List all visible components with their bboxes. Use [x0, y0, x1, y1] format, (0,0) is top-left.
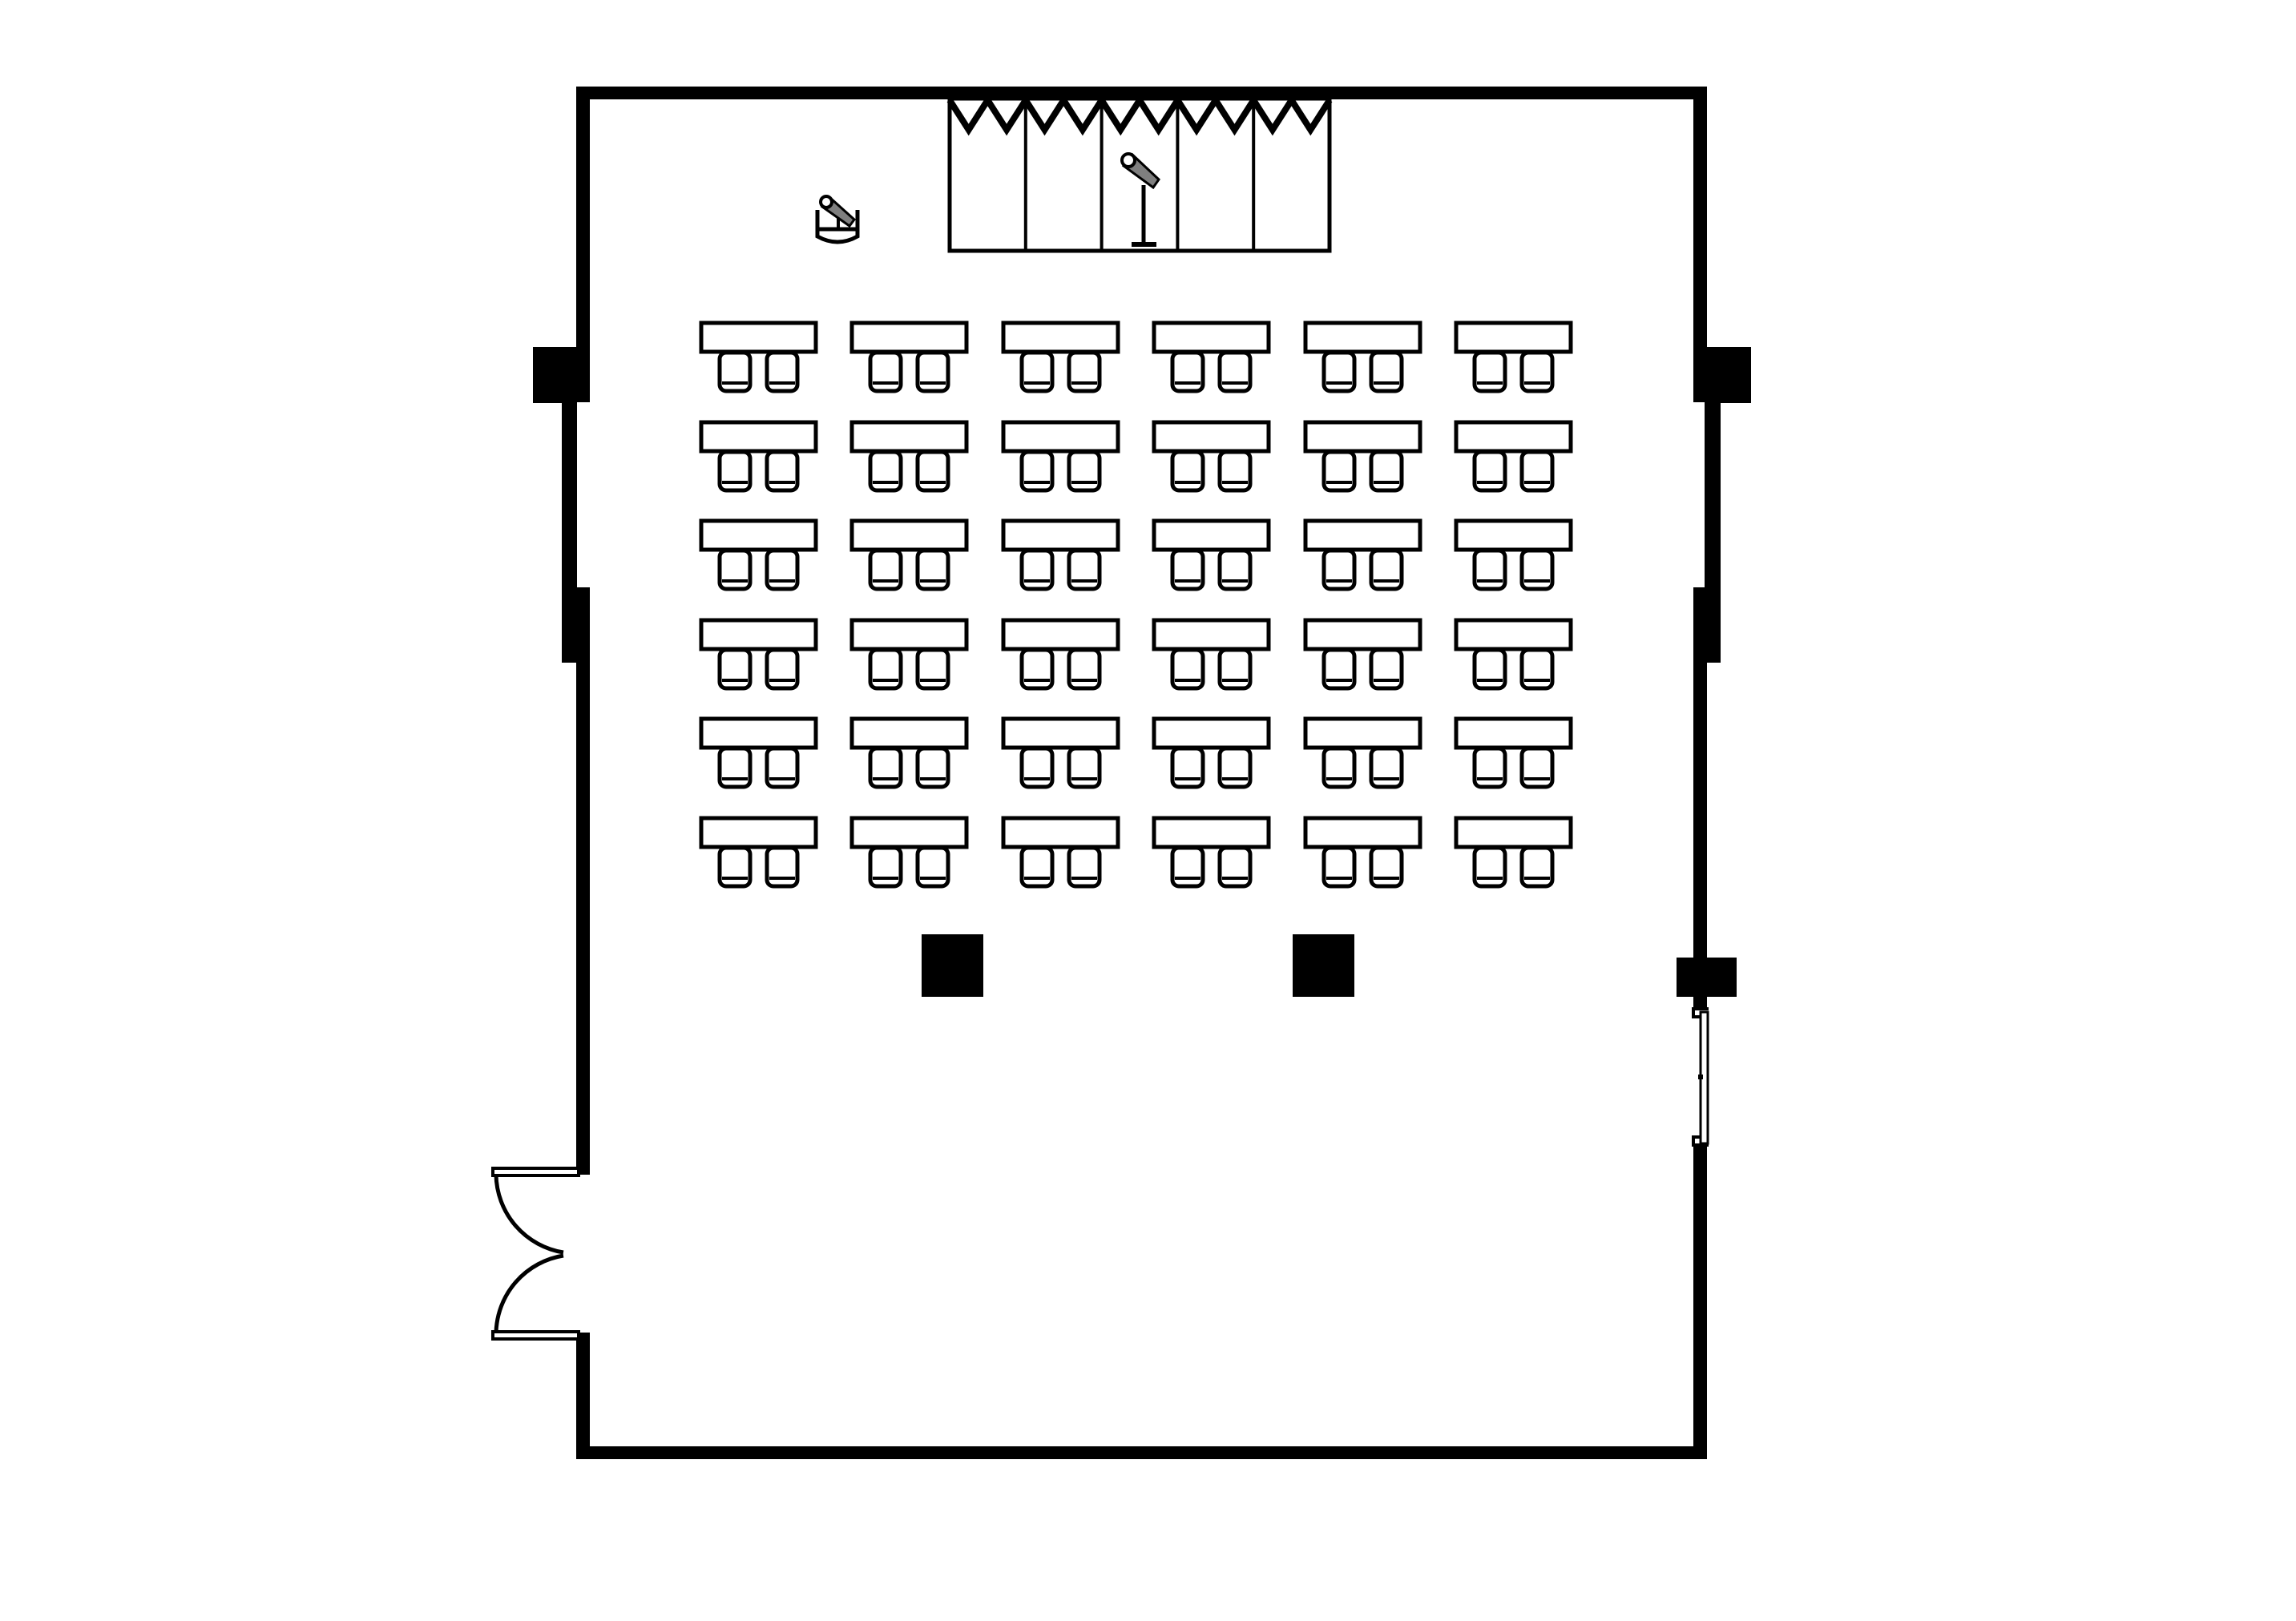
lectern-mic-head — [821, 196, 832, 208]
chair[interactable] — [1022, 550, 1052, 589]
sliding-door-mid-tick — [1698, 1075, 1703, 1079]
chair[interactable] — [767, 452, 797, 490]
table-with-chairs[interactable] — [1456, 521, 1571, 589]
floor-plan-page — [0, 0, 2296, 1621]
wall-unit-block[interactable] — [1677, 958, 1737, 997]
table[interactable] — [1154, 323, 1269, 352]
chair[interactable] — [1172, 550, 1203, 589]
chair[interactable] — [1069, 650, 1100, 688]
table-with-chairs[interactable] — [1154, 719, 1269, 787]
seating-area — [701, 323, 1571, 886]
table-with-chairs[interactable] — [1456, 719, 1571, 787]
table-with-chairs[interactable] — [1456, 323, 1571, 391]
table-with-chairs[interactable] — [1003, 422, 1118, 490]
chair[interactable] — [1022, 748, 1052, 787]
table[interactable] — [1154, 521, 1269, 550]
chair[interactable] — [1172, 650, 1203, 688]
table-with-chairs[interactable] — [852, 719, 966, 787]
table-with-chairs[interactable] — [701, 323, 816, 391]
chair[interactable] — [1022, 848, 1052, 886]
table[interactable] — [1456, 521, 1571, 550]
chair[interactable] — [1522, 353, 1552, 391]
chair[interactable] — [1475, 452, 1505, 490]
wall-pier — [1693, 587, 1707, 663]
sliding-door[interactable] — [1693, 1009, 1709, 1145]
chair[interactable] — [1220, 748, 1250, 787]
chair[interactable] — [918, 550, 948, 589]
wall-pier — [576, 587, 590, 663]
room-walls — [533, 87, 1751, 1459]
floor-plan-canvas — [0, 0, 2296, 1621]
door-swing-arc — [496, 1175, 563, 1252]
table-with-chairs[interactable] — [1003, 818, 1118, 886]
chair[interactable] — [1069, 848, 1100, 886]
table[interactable] — [1003, 521, 1118, 550]
table-with-chairs[interactable] — [1305, 521, 1420, 589]
table[interactable] — [1456, 719, 1571, 748]
table[interactable] — [852, 521, 966, 550]
door-jamb — [579, 1167, 590, 1175]
table[interactable] — [1456, 818, 1571, 847]
table[interactable] — [701, 422, 816, 451]
table[interactable] — [1305, 422, 1420, 451]
table[interactable] — [1003, 323, 1118, 352]
chair[interactable] — [1220, 650, 1250, 688]
chair[interactable] — [1522, 650, 1552, 688]
table-with-chairs[interactable] — [701, 818, 816, 886]
table[interactable] — [701, 818, 816, 847]
table-with-chairs[interactable] — [1305, 818, 1420, 886]
table[interactable] — [852, 818, 966, 847]
table[interactable] — [1154, 719, 1269, 748]
door-leaf[interactable] — [493, 1168, 579, 1175]
floor-block[interactable] — [922, 934, 983, 997]
table-with-chairs[interactable] — [701, 422, 816, 490]
table-with-chairs[interactable] — [1305, 620, 1420, 688]
chair[interactable] — [1022, 452, 1052, 490]
chair[interactable] — [1172, 452, 1203, 490]
door-leaf[interactable] — [493, 1332, 579, 1339]
table-with-chairs[interactable] — [1456, 620, 1571, 688]
chair[interactable] — [1475, 550, 1505, 589]
chair[interactable] — [767, 550, 797, 589]
chair[interactable] — [870, 848, 901, 886]
chair[interactable] — [767, 748, 797, 787]
chair[interactable] — [918, 353, 948, 391]
chair[interactable] — [1371, 452, 1402, 490]
table[interactable] — [1305, 323, 1420, 352]
double-door[interactable] — [493, 1167, 590, 1340]
wall-segment — [576, 663, 590, 1167]
chair[interactable] — [1371, 650, 1402, 688]
chair[interactable] — [1475, 748, 1505, 787]
chair[interactable] — [1022, 650, 1052, 688]
wall-segment — [576, 87, 590, 402]
table-with-chairs[interactable] — [852, 323, 966, 391]
table-with-chairs[interactable] — [1003, 620, 1118, 688]
table-with-chairs[interactable] — [1154, 323, 1269, 391]
chair[interactable] — [1371, 353, 1402, 391]
table[interactable] — [1305, 620, 1420, 649]
table-with-chairs[interactable] — [1003, 323, 1118, 391]
table[interactable] — [1456, 620, 1571, 649]
chair[interactable] — [1324, 550, 1354, 589]
wall-segment — [576, 1446, 1707, 1459]
chair[interactable] — [1324, 650, 1354, 688]
chair[interactable] — [1172, 748, 1203, 787]
table-with-chairs[interactable] — [852, 818, 966, 886]
wall-segment — [562, 402, 577, 663]
chair[interactable] — [1324, 353, 1354, 391]
table[interactable] — [1305, 818, 1420, 847]
table[interactable] — [701, 620, 816, 649]
chair[interactable] — [720, 353, 750, 391]
table-with-chairs[interactable] — [1456, 422, 1571, 490]
table-with-chairs[interactable] — [1154, 521, 1269, 589]
chair[interactable] — [1069, 550, 1100, 589]
door-swing-arc — [496, 1256, 563, 1333]
table-with-chairs[interactable] — [1154, 818, 1269, 886]
table[interactable] — [852, 323, 966, 352]
table[interactable] — [701, 521, 816, 550]
floor-block[interactable] — [1293, 934, 1354, 997]
chair[interactable] — [1371, 848, 1402, 886]
chair[interactable] — [1522, 748, 1552, 787]
chair[interactable] — [1324, 748, 1354, 787]
table-with-chairs[interactable] — [1305, 719, 1420, 787]
chair[interactable] — [918, 848, 948, 886]
chair[interactable] — [870, 748, 901, 787]
table[interactable] — [852, 422, 966, 451]
chair[interactable] — [918, 452, 948, 490]
table[interactable] — [1154, 620, 1269, 649]
chair[interactable] — [767, 848, 797, 886]
chair[interactable] — [720, 550, 750, 589]
table-with-chairs[interactable] — [852, 521, 966, 589]
chair[interactable] — [918, 650, 948, 688]
chair[interactable] — [1220, 452, 1250, 490]
chair[interactable] — [1172, 353, 1203, 391]
table-with-chairs[interactable] — [852, 620, 966, 688]
chair[interactable] — [1220, 550, 1250, 589]
table[interactable] — [1003, 818, 1118, 847]
wall-pier — [1705, 347, 1751, 403]
table[interactable] — [1003, 719, 1118, 748]
chair[interactable] — [918, 748, 948, 787]
chair[interactable] — [870, 650, 901, 688]
chair[interactable] — [870, 353, 901, 391]
chair[interactable] — [1069, 353, 1100, 391]
table[interactable] — [852, 620, 966, 649]
chair[interactable] — [1522, 848, 1552, 886]
table[interactable] — [1305, 521, 1420, 550]
door-jamb — [579, 1333, 590, 1340]
lectern-icon[interactable] — [817, 196, 857, 242]
table[interactable] — [1456, 323, 1571, 352]
table-with-chairs[interactable] — [1003, 719, 1118, 787]
chair[interactable] — [1371, 748, 1402, 787]
wall-pier — [533, 347, 577, 403]
chair[interactable] — [1324, 848, 1354, 886]
table-with-chairs[interactable] — [701, 620, 816, 688]
table[interactable] — [1003, 620, 1118, 649]
chair[interactable] — [870, 550, 901, 589]
chair[interactable] — [1371, 550, 1402, 589]
table[interactable] — [1154, 818, 1269, 847]
chair[interactable] — [1475, 650, 1505, 688]
wall-segment — [576, 1340, 590, 1446]
table-with-chairs[interactable] — [1456, 818, 1571, 886]
table[interactable] — [1305, 719, 1420, 748]
chair[interactable] — [1522, 452, 1552, 490]
chair[interactable] — [1475, 848, 1505, 886]
table-with-chairs[interactable] — [701, 719, 816, 787]
table[interactable] — [1003, 422, 1118, 451]
table-with-chairs[interactable] — [701, 521, 816, 589]
table-with-chairs[interactable] — [1154, 422, 1269, 490]
chair[interactable] — [1069, 748, 1100, 787]
mic-head — [1122, 154, 1135, 167]
table-with-chairs[interactable] — [1003, 521, 1118, 589]
chair[interactable] — [767, 353, 797, 391]
chair[interactable] — [1069, 452, 1100, 490]
chair[interactable] — [720, 650, 750, 688]
table-with-chairs[interactable] — [1305, 422, 1420, 490]
chair[interactable] — [1475, 353, 1505, 391]
chair[interactable] — [870, 452, 901, 490]
chair[interactable] — [1172, 848, 1203, 886]
table-with-chairs[interactable] — [852, 422, 966, 490]
table[interactable] — [1154, 422, 1269, 451]
table[interactable] — [852, 719, 966, 748]
table[interactable] — [701, 323, 816, 352]
table-with-chairs[interactable] — [1154, 620, 1269, 688]
chair[interactable] — [1220, 353, 1250, 391]
wall-segment — [1693, 1144, 1707, 1446]
chair[interactable] — [1220, 848, 1250, 886]
wall-segment — [1693, 663, 1707, 958]
chair[interactable] — [720, 748, 750, 787]
table-with-chairs[interactable] — [1305, 323, 1420, 391]
chair[interactable] — [1522, 550, 1552, 589]
chair[interactable] — [1324, 452, 1354, 490]
table[interactable] — [1456, 422, 1571, 451]
chair[interactable] — [720, 452, 750, 490]
chair[interactable] — [767, 650, 797, 688]
table[interactable] — [701, 719, 816, 748]
chair[interactable] — [1022, 353, 1052, 391]
chair[interactable] — [720, 848, 750, 886]
